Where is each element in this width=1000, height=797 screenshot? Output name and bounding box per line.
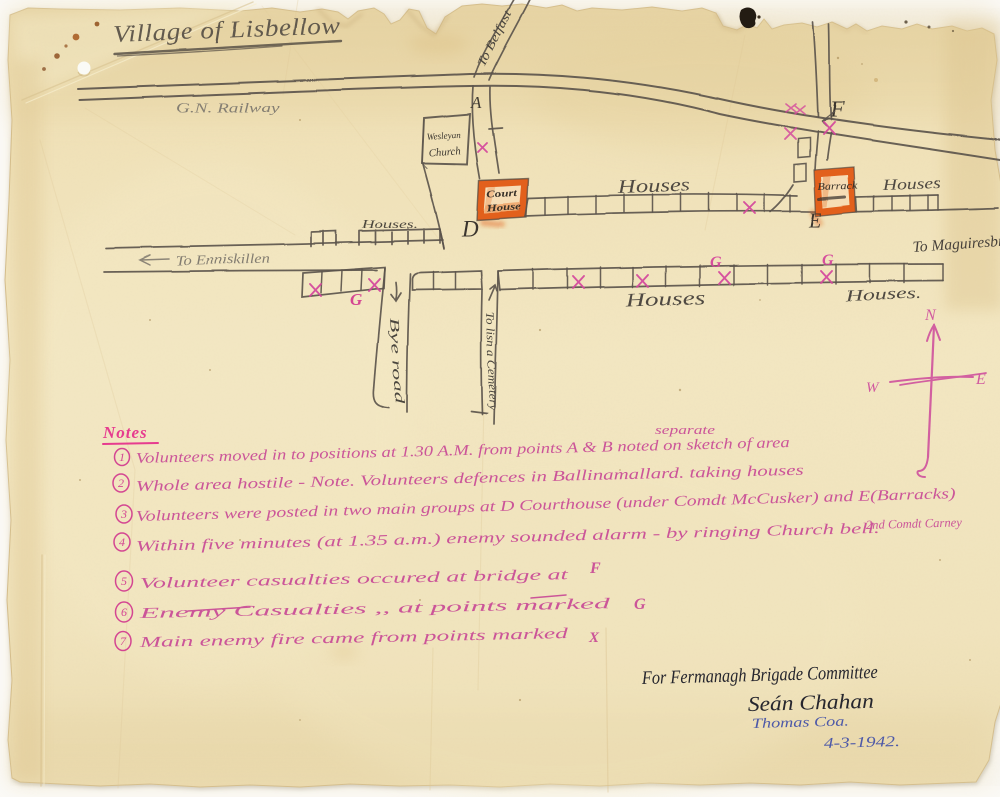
svg-text:G: G xyxy=(710,254,722,271)
svg-text:F: F xyxy=(589,560,601,577)
svg-text:2: 2 xyxy=(118,476,124,490)
svg-text:Houses.: Houses. xyxy=(361,217,418,231)
svg-text:separate: separate xyxy=(655,423,716,437)
svg-text:G: G xyxy=(634,596,646,613)
svg-text:N: N xyxy=(924,307,937,324)
svg-text:G: G xyxy=(350,290,363,309)
svg-text:X: X xyxy=(588,630,600,646)
svg-text:Houses.: Houses. xyxy=(844,285,922,305)
svg-text:E: E xyxy=(975,371,986,388)
svg-text:G: G xyxy=(822,252,834,269)
svg-text:4: 4 xyxy=(119,535,125,549)
svg-text:Seán Chahan: Seán Chahan xyxy=(748,689,875,716)
svg-text:G.N. Railway: G.N. Railway xyxy=(176,101,281,116)
svg-text:W: W xyxy=(866,380,880,396)
svg-text:Court: Court xyxy=(487,187,519,200)
svg-text:Houses: Houses xyxy=(616,174,690,198)
svg-text:House: House xyxy=(485,201,522,214)
svg-text:6: 6 xyxy=(121,605,127,619)
svg-text:2nd Comdt Carney: 2nd Comdt Carney xyxy=(866,515,963,532)
svg-text:Barrack: Barrack xyxy=(818,181,859,193)
svg-text:F: F xyxy=(829,97,845,122)
svg-text:Notes: Notes xyxy=(102,423,148,442)
svg-text:7: 7 xyxy=(120,634,127,648)
svg-text:To Enniskillen: To Enniskillen xyxy=(176,251,271,268)
svg-text:5: 5 xyxy=(121,574,127,588)
svg-text:Church: Church xyxy=(428,146,461,159)
svg-text:E: E xyxy=(808,208,822,232)
svg-text:3: 3 xyxy=(120,507,127,521)
svg-text:4-3-1942.: 4-3-1942. xyxy=(824,734,900,752)
svg-text:D: D xyxy=(461,216,479,241)
svg-text:Houses: Houses xyxy=(624,287,706,311)
svg-text:Houses: Houses xyxy=(881,175,941,194)
svg-text:1: 1 xyxy=(119,450,125,464)
svg-text:A: A xyxy=(470,93,482,112)
svg-text:Thomas Coa.: Thomas Coa. xyxy=(752,714,849,732)
